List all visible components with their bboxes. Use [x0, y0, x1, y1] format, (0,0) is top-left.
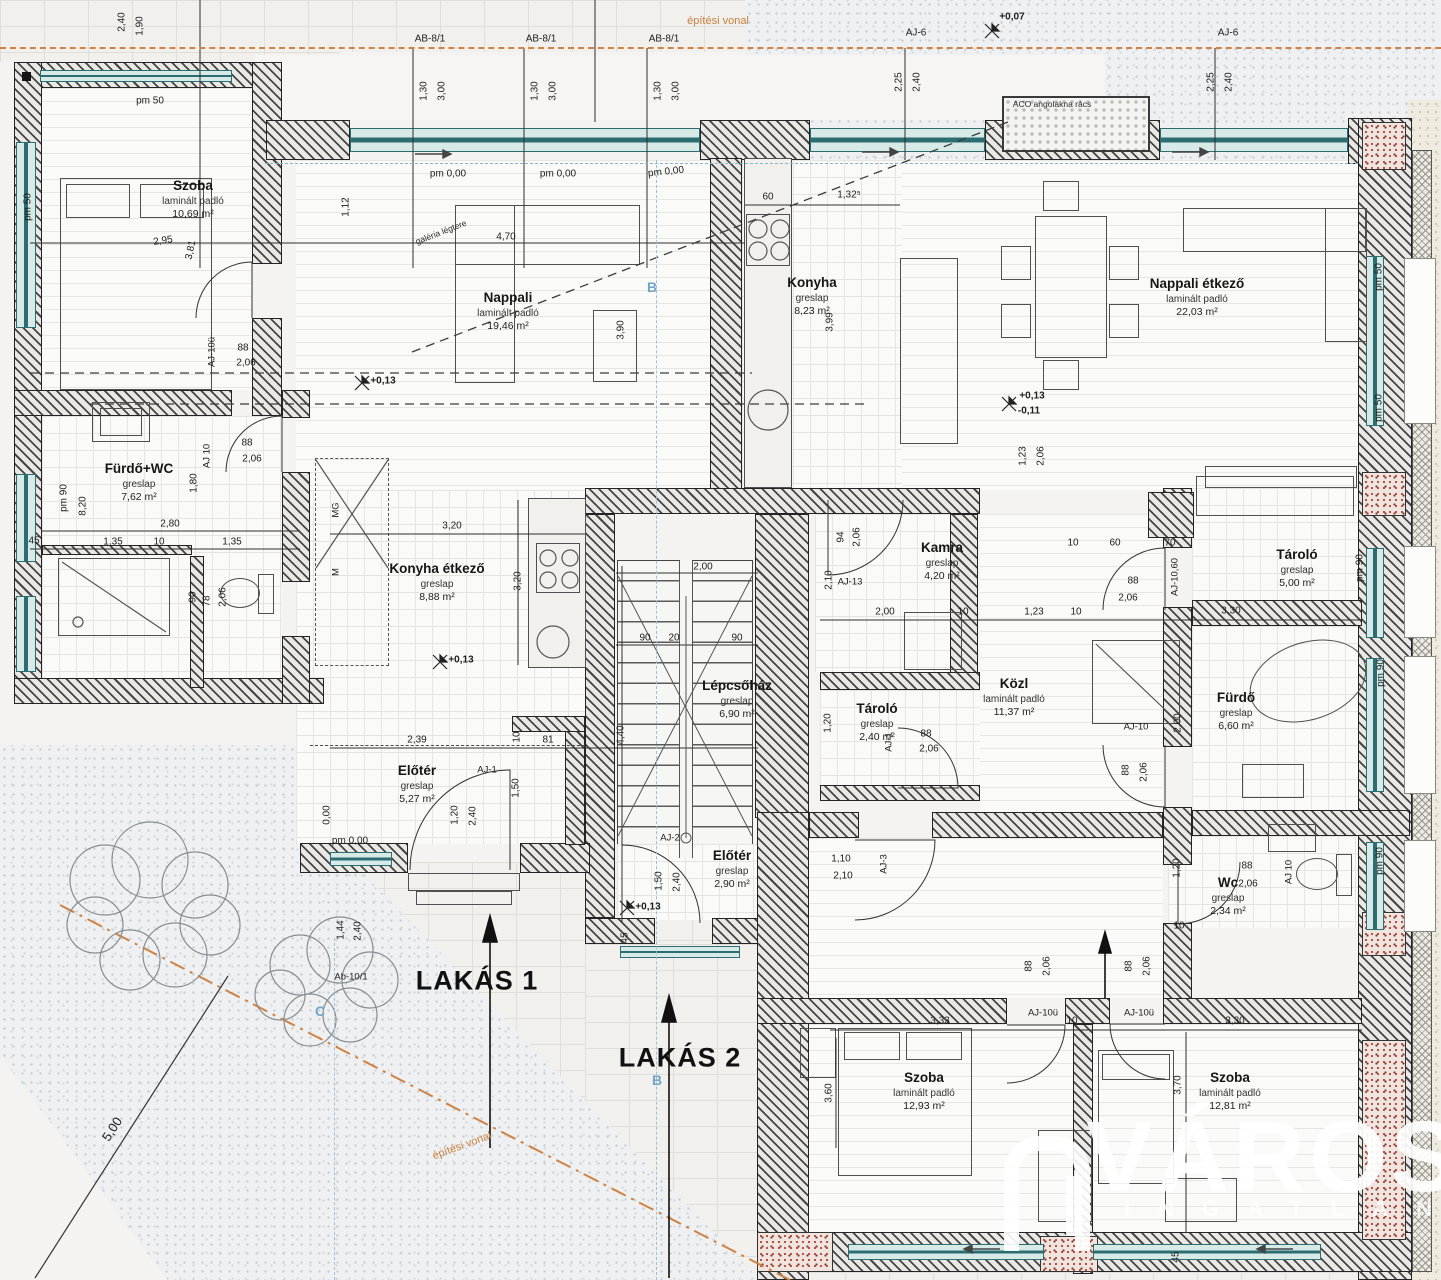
label-dim: 60 — [762, 192, 773, 203]
label-dim: 1,90 — [135, 16, 146, 35]
watermark-logo-bar — [1066, 1176, 1082, 1236]
room-material: greslap — [1276, 564, 1317, 577]
room-material: greslap — [1217, 707, 1255, 720]
label-dim: 10 — [1173, 921, 1184, 932]
label-dim: 2,06 — [218, 587, 229, 606]
room-name: Előtér — [713, 847, 751, 865]
room-label-4: Fürdő+WCgreslap7,62 m² — [105, 460, 174, 504]
room-name: Nappali étkező — [1150, 275, 1245, 293]
label-dim: pm 90 — [1375, 847, 1386, 875]
label-dim: 4,40 — [616, 725, 627, 744]
label-dim: 2,06 — [1036, 446, 1047, 465]
floorplan-canvas: Szobalaminált padló10,69 m²Nappalilaminá… — [0, 0, 1441, 1280]
label-dim: 2,40 — [912, 72, 923, 91]
label-dim: 4,70 — [496, 232, 515, 243]
room-material: greslap — [921, 557, 963, 570]
label-dim: 1,10 — [831, 854, 850, 865]
room-material: greslap — [389, 578, 484, 591]
label-code: AJ-13 — [838, 577, 863, 588]
label-dim: 3,00 — [548, 81, 559, 100]
label-dim: 70 — [1164, 538, 1175, 549]
label-dim: 10 — [1070, 607, 1081, 618]
label-dim: 78 — [202, 595, 213, 606]
room-material: greslap — [1210, 892, 1246, 905]
label-code: AJ-10ü — [1028, 1008, 1058, 1019]
label-dim: 3,00 — [437, 81, 448, 100]
room-name: Lépcsőház — [702, 677, 772, 695]
label-dim: 60 — [1109, 538, 1120, 549]
room-area: 5,00 m² — [1276, 577, 1317, 591]
room-material: laminált padló — [983, 693, 1045, 706]
room-label-6: Lépcsőházgreslap6,90 m² — [702, 677, 772, 721]
room-name: Konyha — [787, 274, 837, 292]
label-dim: 45 — [28, 536, 39, 547]
label-dim: 1,44 — [336, 920, 347, 939]
room-label-7: Előtérgreslap5,27 m² — [398, 762, 436, 806]
room-area: 2,90 m² — [713, 878, 751, 892]
label-dim: 94 — [836, 531, 847, 542]
room-area: 22,03 m² — [1150, 306, 1245, 320]
label-dim: pm 90 — [59, 484, 70, 512]
room-area: 12,81 m² — [1199, 1100, 1261, 1114]
label-dim: 1,12 — [341, 197, 352, 216]
label-dim: 1,32⁵ — [837, 190, 861, 201]
room-area: 5,27 m² — [398, 793, 436, 807]
room-name: Szoba — [893, 1069, 955, 1087]
build-line-diagonal — [60, 905, 790, 1280]
label-dim: pm 0,00 — [332, 836, 368, 847]
label-dim: 2,80 — [160, 519, 179, 530]
label-tiny: ACO angolakna rács — [1013, 99, 1091, 109]
label-dim: 2,06 — [1238, 879, 1257, 890]
label-dim: 2,25 — [894, 72, 905, 91]
label-dim: 10 — [957, 607, 968, 618]
label-dim: pm 50 — [136, 96, 164, 107]
label-code: M — [331, 568, 342, 576]
label-dim: 1,50 — [511, 778, 522, 797]
room-material: greslap — [398, 780, 436, 793]
label-dim: 10 — [1067, 538, 1078, 549]
label-dim: 10 — [1066, 1016, 1077, 1027]
label-code: AJ-3 — [879, 854, 890, 874]
label-section: C — [315, 1003, 325, 1019]
room-name: Szoba — [1199, 1069, 1261, 1087]
room-name: Konyha étkező — [389, 560, 484, 578]
label-dim: 88 — [1121, 764, 1132, 775]
label-dim: 2,06 — [919, 744, 938, 755]
label-code: MG — [331, 502, 342, 517]
room-material: greslap — [702, 695, 772, 708]
label-dim: 88 — [1124, 960, 1135, 971]
label-dim: pm 0,00 — [430, 169, 466, 180]
room-name: Nappali — [477, 289, 539, 307]
label-level: +0,07 — [999, 12, 1024, 23]
label-dim: AB-8/1 — [649, 34, 680, 45]
label-code: AJ 10 — [202, 444, 213, 468]
label-level: +0,13 — [635, 902, 660, 913]
label-code: AJ-10ü — [1124, 1008, 1154, 1019]
label-dim: 2,40 — [117, 12, 128, 31]
room-material: greslap — [787, 292, 837, 305]
room-material: laminált padló — [1199, 1087, 1261, 1100]
room-name: Szoba — [162, 177, 224, 195]
section-line-c — [334, 938, 335, 1280]
label-dim: 2,00 — [1173, 713, 1184, 732]
label-dim: 1,20 — [1172, 858, 1183, 877]
label-dim: 1,23 — [1018, 446, 1029, 465]
label-dim: 88 — [1127, 576, 1138, 587]
label-dim: 1,30 — [419, 81, 430, 100]
label-dim: 3,20 — [442, 521, 461, 532]
label-dim: 1,80 — [189, 473, 200, 492]
label-dim: pm 50 — [23, 193, 34, 221]
label-level: +0,13 — [448, 655, 473, 666]
label-dim: 0,00 — [322, 805, 333, 824]
label-dim: 2,40 — [672, 872, 683, 891]
label-dim: 2,06 — [236, 358, 255, 369]
room-area: 4,20 m² — [921, 570, 963, 584]
room-material: greslap — [856, 718, 897, 731]
label-dim: 81 — [542, 735, 553, 746]
label-dim: 2,25 — [1206, 72, 1217, 91]
room-area: 19,46 m² — [477, 320, 539, 334]
label-dim: 88 — [1024, 960, 1035, 971]
label-dim: 1,35 — [103, 537, 122, 548]
label-dim: 90 — [188, 591, 199, 602]
room-label-15: Szobalaminált padló12,93 m² — [893, 1069, 955, 1113]
label-dim: 2,10 — [824, 570, 835, 589]
label-code: AJ-10,60 — [1170, 558, 1181, 596]
label-dim: 10 — [512, 731, 523, 742]
room-area: 6,60 m² — [1217, 720, 1255, 734]
room-name: Fürdő — [1217, 689, 1255, 707]
room-label-0: Szobalaminált padló10,69 m² — [162, 177, 224, 221]
room-name: Tároló — [1276, 546, 1317, 564]
room-material: greslap — [105, 478, 174, 491]
room-material: greslap — [713, 865, 751, 878]
label-code: AJ-2 — [660, 833, 680, 844]
label-code: AJ 10 — [1284, 860, 1295, 884]
dim-line-5m — [35, 976, 228, 1278]
label-dim: 3,00 — [671, 81, 682, 100]
room-name: Tároló — [856, 700, 897, 718]
label-section: B — [647, 279, 657, 295]
label-dim: 2,40 — [1224, 72, 1235, 91]
label-dim: 3,90 — [616, 320, 627, 339]
label-dim: pm 90 — [1355, 554, 1366, 582]
label-dim: 2,00 — [693, 562, 712, 573]
room-label-11: Közllaminált padló11,37 m² — [983, 675, 1045, 719]
label-dim: AJ-6 — [906, 28, 927, 39]
label-dim: 2,06 — [1118, 593, 1137, 604]
room-name: Fürdő+WC — [105, 460, 174, 478]
label-level: +0,13 — [1019, 391, 1044, 402]
label-dim: 88 — [920, 729, 931, 740]
room-label-8: Előtérgreslap2,90 m² — [713, 847, 751, 891]
room-label-3: Nappali étkezőlaminált padló22,03 m² — [1150, 275, 1245, 319]
room-material: laminált padló — [1150, 293, 1245, 306]
label-dim: 20 — [668, 633, 679, 644]
build-line-top — [0, 47, 1441, 49]
label-level: +0,13 — [370, 376, 395, 387]
label-dim: 8,20 — [78, 496, 89, 515]
room-area: 2,34 m² — [1210, 905, 1246, 919]
room-name: Közl — [983, 675, 1045, 693]
apartment-title-2: LAKÁS 2 — [619, 1043, 742, 1074]
room-name: Kamra — [921, 539, 963, 557]
room-label-5: Konyha étkezőgreslap8,88 m² — [389, 560, 484, 604]
room-name: Előtér — [398, 762, 436, 780]
label-dim: 1,50 — [654, 871, 665, 890]
label-dim: 3,20 — [513, 571, 524, 590]
room-area: 10,69 m² — [162, 208, 224, 222]
label-dim: 3,33 — [930, 1016, 949, 1027]
label-dim: 3,99 — [825, 312, 836, 331]
room-area: 6,90 m² — [702, 708, 772, 722]
room-label-9: Kamragreslap4,20 m² — [921, 539, 963, 583]
label-dim: 2,06 — [1142, 956, 1153, 975]
room-material: laminált padló — [162, 195, 224, 208]
room-material: laminált padló — [477, 307, 539, 320]
label-code: Ab-10/1 — [334, 972, 367, 983]
label-code: AJ-10ü — [207, 337, 218, 367]
label-dim: 2,06 — [852, 527, 863, 546]
apartment-title-1: LAKÁS 1 — [416, 966, 539, 997]
label-dim: pm 0,00 — [540, 169, 576, 180]
label-dim: 3,60 — [824, 1083, 835, 1102]
label-dim: 1,30 — [530, 81, 541, 100]
room-area: 11,37 m² — [983, 706, 1045, 720]
label-dim: pm 50 — [1374, 394, 1385, 422]
section-line-b — [656, 160, 657, 1280]
label-dim: 2,10 — [833, 871, 852, 882]
label-dim: 1,20 — [823, 713, 834, 732]
label-dim: 88 — [237, 343, 248, 354]
room-area: 7,62 m² — [105, 491, 174, 505]
room-label-12: Fürdőgreslap6,60 m² — [1217, 689, 1255, 733]
label-level: -0,11 — [1018, 406, 1040, 417]
gallery-dashed-lines — [30, 122, 1008, 404]
room-label-16: Szobalaminált padló12,81 m² — [1199, 1069, 1261, 1113]
label-section: B — [652, 1072, 662, 1088]
label-dim: 2,06 — [242, 454, 261, 465]
label-dim: 10 — [153, 537, 164, 548]
label-dim: 1,35 — [222, 537, 241, 548]
label-dim: pm 50 — [1374, 263, 1385, 291]
label-dim: 2,00 — [875, 607, 894, 618]
room-label-1: Nappalilaminált padló19,46 m² — [477, 289, 539, 333]
label-dim: 2,06 — [1139, 762, 1150, 781]
room-area: 12,93 m² — [893, 1100, 955, 1114]
label-dim: 1,20 — [450, 805, 461, 824]
label-dim: 45 — [620, 932, 631, 943]
label-dim: 88 — [241, 438, 252, 449]
label-dim: 3,30 — [1221, 606, 1240, 617]
label-dim: 2,40 — [353, 921, 364, 940]
label-dim: AB-8/1 — [526, 34, 557, 45]
facade-guide-line — [265, 163, 1358, 164]
label-dim: 90 — [639, 633, 650, 644]
room-material: laminált padló — [893, 1087, 955, 1100]
label-dim: 3,30 — [1225, 1016, 1244, 1027]
label-dim: 1,30 — [653, 81, 664, 100]
label-code: AJ-10 — [1124, 722, 1149, 733]
label-dim: 2,40 — [468, 806, 479, 825]
label-dim: pm 90 — [1376, 659, 1387, 687]
door-arcs — [196, 262, 1240, 1083]
label-dim: 2,39 — [407, 735, 426, 746]
label-dim: 1,23 — [1024, 607, 1043, 618]
label-code: AJ-1 — [477, 765, 497, 776]
label-dim: 3,70 — [1173, 1075, 1184, 1094]
room-area: 8,88 m² — [389, 591, 484, 605]
label-dim: 2,06 — [1042, 956, 1053, 975]
label-dim: 45 — [1171, 1251, 1182, 1262]
label-dim: AJ-6 — [1218, 28, 1239, 39]
label-code: AJ-1 — [884, 732, 895, 752]
label-dim: 90 — [731, 633, 742, 644]
label-dim: 88 — [1241, 861, 1252, 872]
label-dim: AB-8/1 — [415, 34, 446, 45]
room-label-13: Tárológreslap5,00 m² — [1276, 546, 1317, 590]
label-note: építési vonal — [687, 15, 749, 27]
